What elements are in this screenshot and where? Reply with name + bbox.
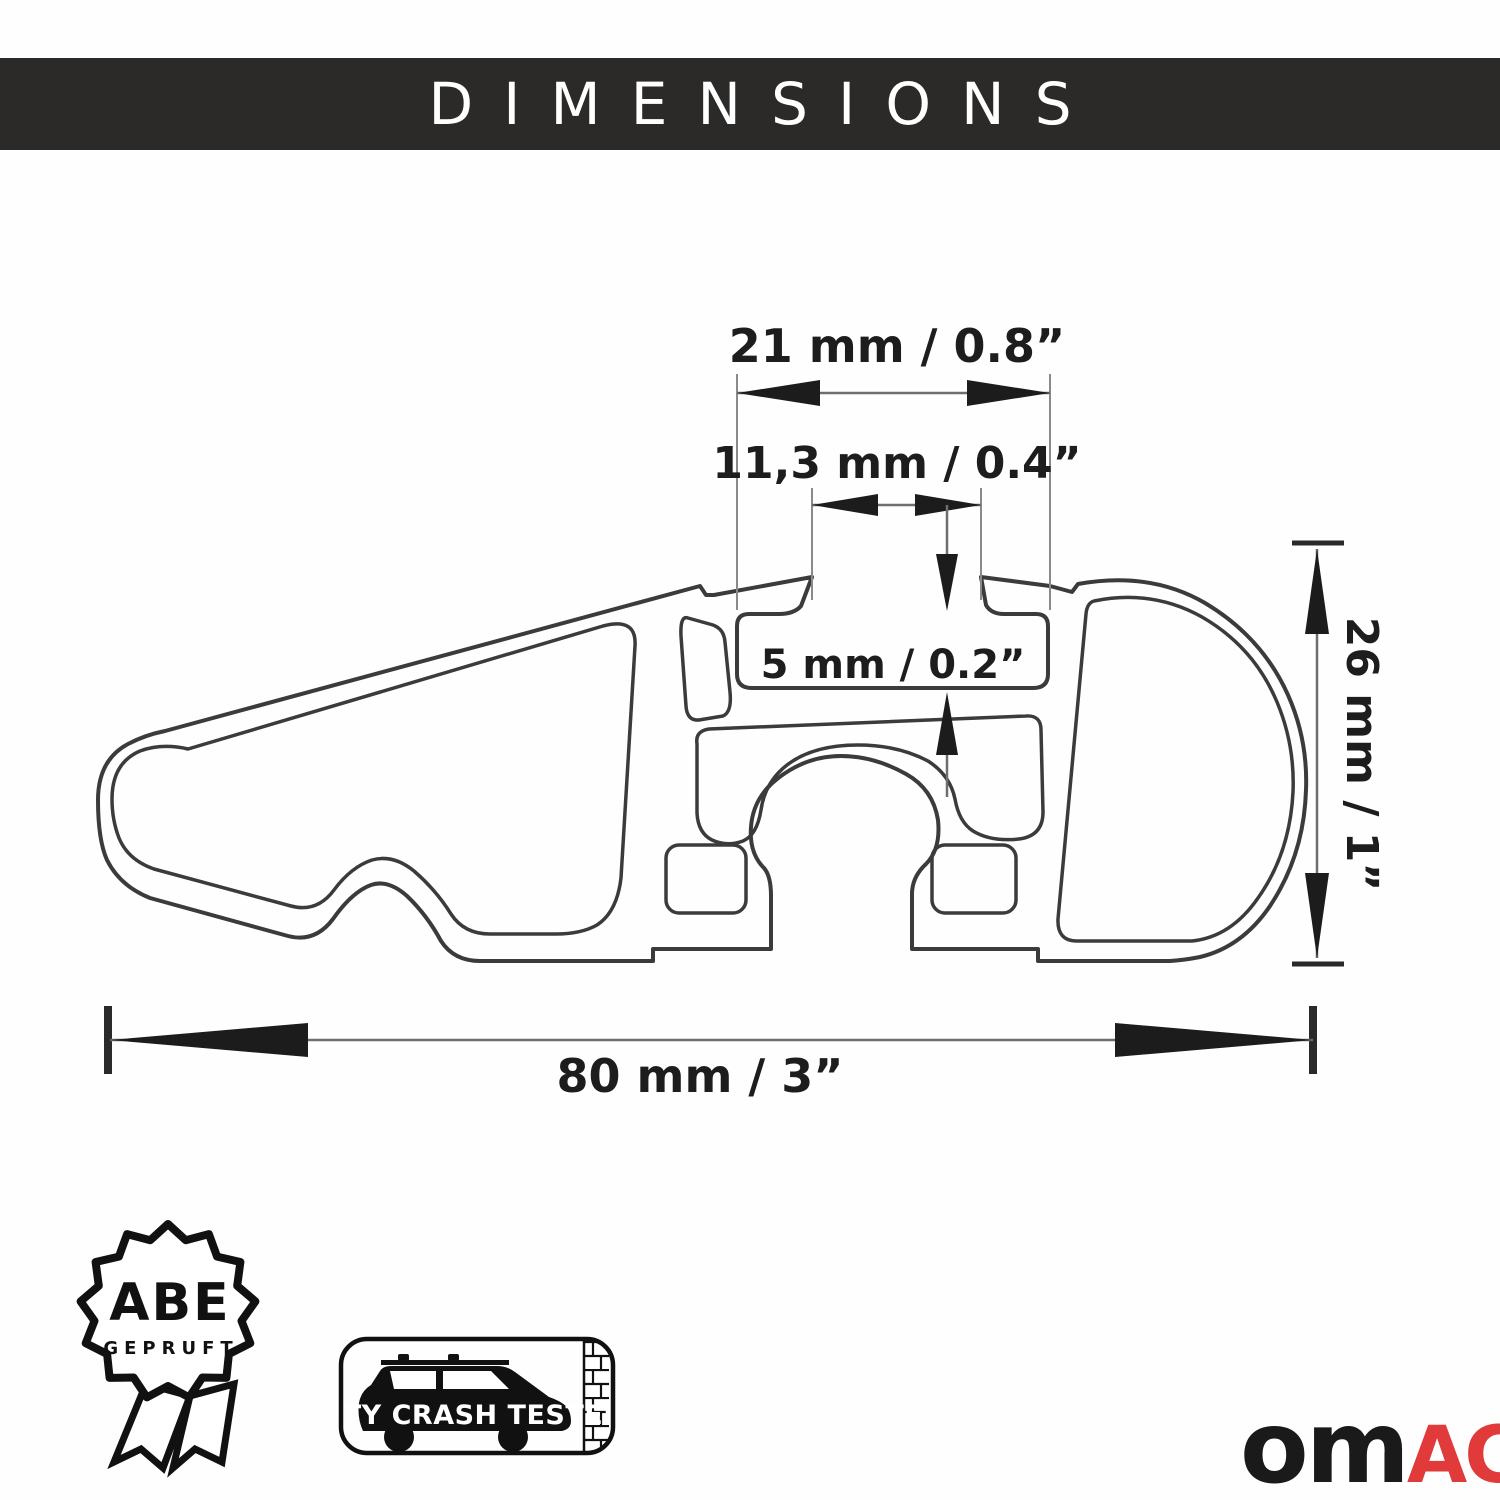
- profile-cavity-mid-lower: [697, 716, 1043, 844]
- dimension-channel-height: 5 mm / 0.2”: [761, 505, 1026, 797]
- technical-drawing: 21 mm / 0.8” 11,3 mm / 0.4” 5 mm / 0.2” …: [0, 0, 1500, 1500]
- dim-label-opening-width: 11,3 mm / 0.4”: [712, 438, 1081, 489]
- svg-text:omAC: omAC: [1240, 1389, 1500, 1500]
- profile-cavity-foot-left: [666, 845, 746, 913]
- crossbar-profile: [98, 577, 1306, 961]
- abe-subtitle: GEPRUFT: [103, 1338, 238, 1359]
- dimension-profile-width: 80 mm / 3”: [108, 1006, 1313, 1103]
- dim-label-profile-height: 26 mm / 1”: [1336, 617, 1387, 891]
- dimension-opening-width: 11,3 mm / 0.4”: [712, 438, 1081, 600]
- brand-logo: omAC: [1240, 1389, 1500, 1500]
- brick-wall-icon: [584, 1341, 609, 1451]
- dim-label-channel-height: 5 mm / 0.2”: [761, 642, 1026, 688]
- profile-cavity-foot-right: [932, 845, 1016, 913]
- abe-badge: ABE GEPRUFT: [81, 1224, 256, 1468]
- logo-text-red: AC: [1407, 1411, 1500, 1500]
- dim-label-profile-width: 80 mm / 3”: [557, 1049, 844, 1103]
- page: DIMENSIONS 21 mm / 0.8”: [0, 0, 1500, 1500]
- profile-cavity-left: [112, 624, 635, 934]
- crash-test-badge: CITY CRASH TESTED: [312, 1339, 626, 1453]
- abe-title: ABE: [109, 1273, 230, 1333]
- profile-cavity-mid-upper: [681, 618, 730, 720]
- logo-text-black: om: [1240, 1389, 1407, 1500]
- crash-test-label: CITY CRASH TESTED: [312, 1400, 626, 1431]
- dim-label-channel-width: 21 mm / 0.8”: [729, 319, 1065, 373]
